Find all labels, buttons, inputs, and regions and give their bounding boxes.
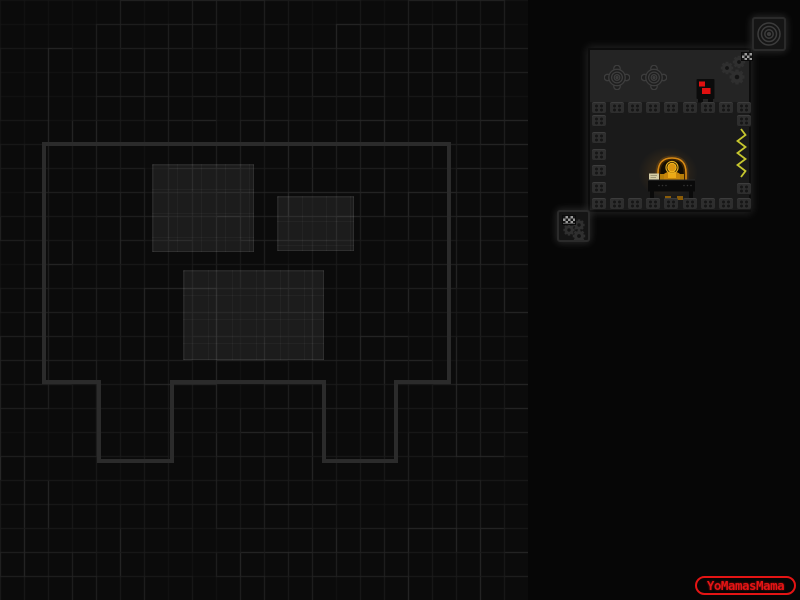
gear-icon [573, 230, 585, 240]
watermark-label: YoMamasMama [707, 578, 784, 593]
game-map-screen: YoMamasMama [0, 0, 800, 600]
wall-block [737, 115, 751, 127]
wall-block [592, 115, 606, 127]
enemy-eye [699, 82, 705, 87]
spiral-room-tile[interactable] [752, 17, 786, 51]
map-room-right-eye[interactable] [277, 196, 354, 251]
wall-block [701, 198, 715, 210]
checker-flag-icon [741, 52, 753, 61]
wall-block [628, 102, 642, 114]
wall-block [737, 102, 751, 114]
gears-room-tile[interactable] [557, 210, 590, 242]
wall-block [592, 149, 606, 161]
rosette-hazard-icon [641, 65, 667, 90]
map-room-left-eye[interactable] [152, 164, 254, 252]
gear-icon [563, 224, 574, 235]
wall-block [664, 102, 678, 114]
papers [649, 174, 659, 181]
wall-block [592, 165, 606, 177]
wall-block [737, 183, 751, 195]
wall-block [592, 132, 606, 144]
wall-block [646, 102, 660, 114]
wall-block [701, 102, 715, 114]
red-enemy [695, 78, 717, 103]
watermark-logo[interactable]: YoMamasMama [695, 576, 796, 595]
rosette-hazard-icon [604, 65, 630, 90]
wall-block [737, 198, 751, 210]
concentric-circles-icon [754, 19, 784, 49]
gear-icon [730, 70, 745, 85]
wall-block [592, 102, 606, 114]
player-head [668, 163, 676, 171]
checker-flag-icon [562, 215, 576, 225]
wall-block [610, 198, 624, 210]
wall-block [646, 198, 660, 210]
wall-block [683, 198, 697, 210]
wall-block [628, 198, 642, 210]
player-at-desk [647, 154, 697, 202]
zigzag-spring-icon [735, 127, 749, 179]
map-rooms-layer [0, 0, 528, 600]
wall-block [719, 102, 733, 114]
room-preview-panel[interactable] [588, 48, 751, 212]
wall-block [592, 198, 606, 210]
wall-block [683, 102, 697, 114]
wall-block [719, 198, 733, 210]
wall-block [664, 198, 678, 210]
enemy-mouth [702, 88, 711, 94]
wall-block [610, 102, 624, 114]
map-room-mouth[interactable] [183, 270, 324, 360]
wall-block [592, 182, 606, 194]
